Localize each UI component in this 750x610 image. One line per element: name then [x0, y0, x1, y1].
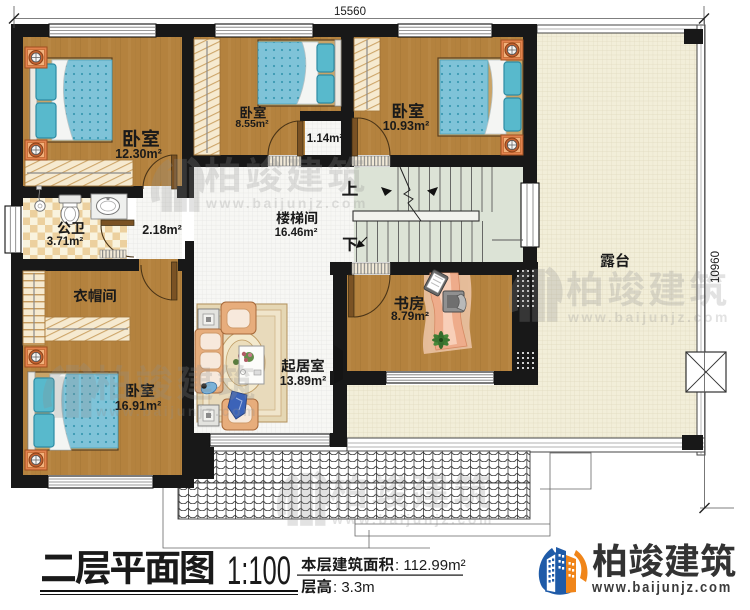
svg-text:www.baijunjz.com: www.baijunjz.com — [331, 512, 494, 527]
svg-text:: 3.3m: : 3.3m — [333, 579, 375, 596]
svg-text:www.baijunjz.com: www.baijunjz.com — [591, 579, 732, 596]
svg-text:www.baijunjz.com: www.baijunjz.com — [205, 196, 368, 211]
svg-text:16.46m²: 16.46m² — [275, 227, 318, 239]
svg-text:15560: 15560 — [334, 6, 366, 18]
svg-text:8.79m²: 8.79m² — [391, 309, 429, 323]
svg-text:www.baijunjz.com: www.baijunjz.com — [95, 404, 258, 419]
svg-text:3.71m²: 3.71m² — [47, 236, 84, 248]
svg-text:2.18m²: 2.18m² — [142, 223, 182, 237]
svg-text:8.55m²: 8.55m² — [235, 118, 269, 130]
svg-text:www.baijunjz.com: www.baijunjz.com — [567, 310, 730, 325]
svg-text:13.89m²: 13.89m² — [280, 374, 327, 388]
svg-text:1.14m²: 1.14m² — [307, 133, 344, 145]
svg-text:1:100: 1:100 — [227, 549, 291, 593]
svg-text:: 112.99m²: : 112.99m² — [395, 557, 466, 574]
svg-text:10.93m²: 10.93m² — [383, 119, 430, 133]
svg-text:10960: 10960 — [710, 251, 722, 283]
svg-text:12.30m²: 12.30m² — [115, 147, 162, 161]
